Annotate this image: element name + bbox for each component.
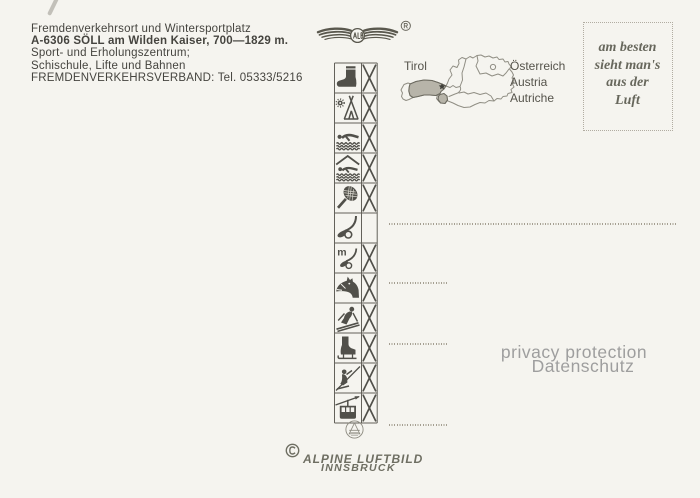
svg-text:m: m [337, 246, 346, 258]
